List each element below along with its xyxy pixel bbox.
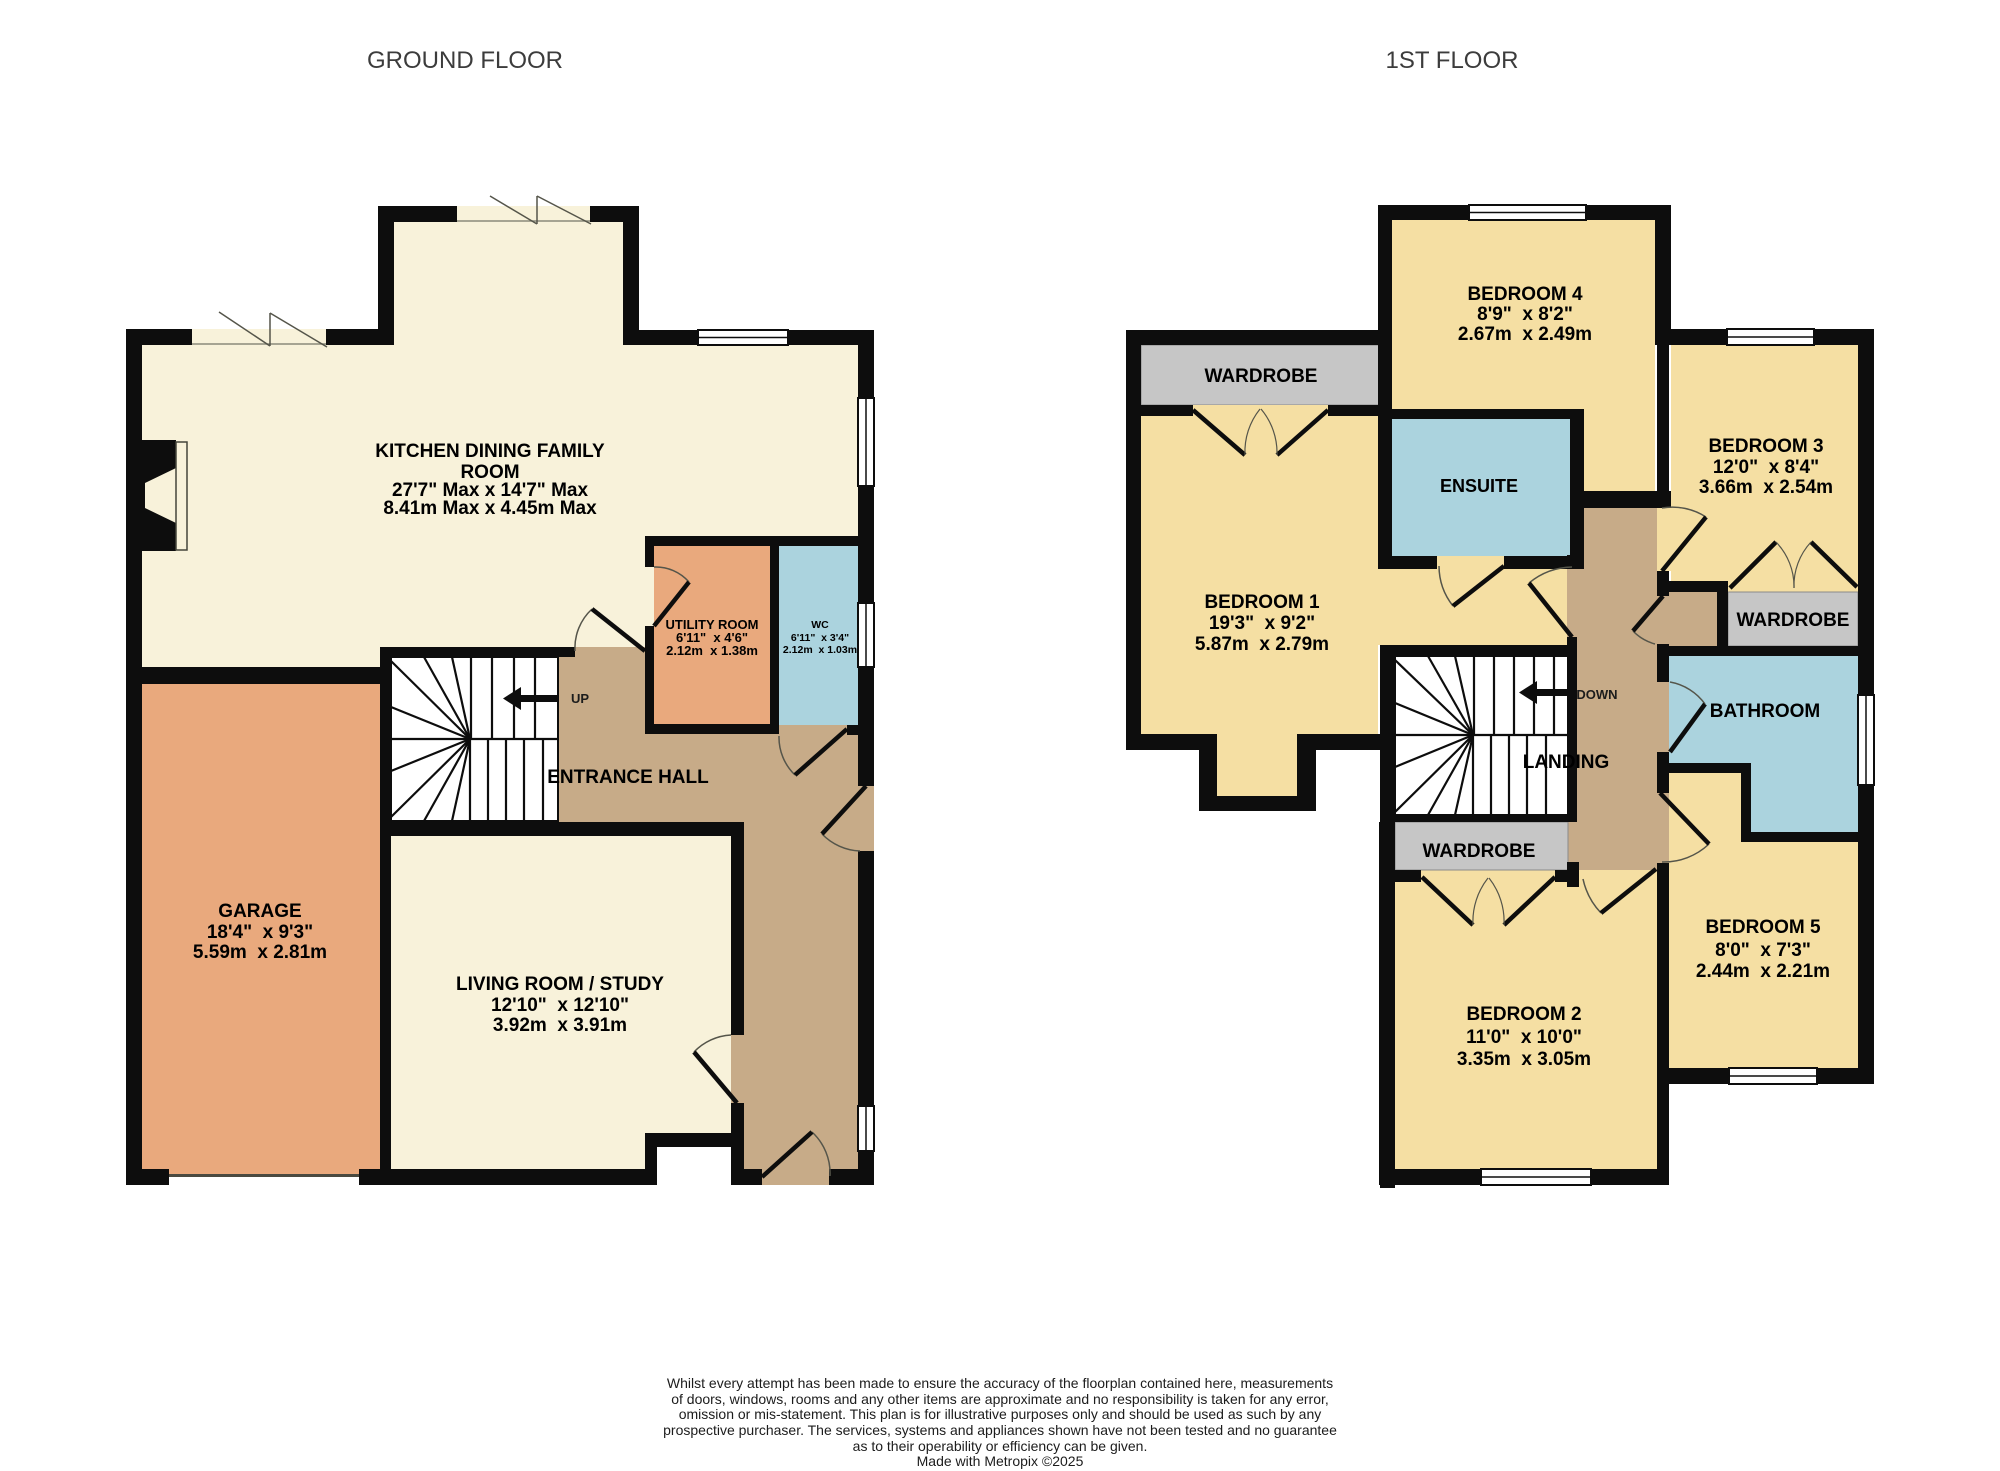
svg-text:BATHROOM: BATHROOM [1710,701,1820,722]
svg-text:2.44m x 2.21m: 2.44m x 2.21m [1696,961,1830,982]
svg-text:of doors, windows, rooms and a: of doors, windows, rooms and any other i… [671,1391,1329,1407]
svg-text:BEDROOM 2: BEDROOM 2 [1466,1004,1581,1025]
svg-text:BEDROOM 5: BEDROOM 5 [1705,917,1821,938]
svg-text:2.12m x 1.38m: 2.12m x 1.38m [666,643,758,658]
svg-text:3.35m x 3.05m: 3.35m x 3.05m [1457,1049,1591,1070]
svg-text:3.66m x 2.54m: 3.66m x 2.54m [1699,477,1833,498]
svg-text:WARDROBE: WARDROBE [1205,366,1318,387]
svg-text:8'0" x 7'3": 8'0" x 7'3" [1715,940,1811,961]
svg-text:KITCHEN DINING FAMILY: KITCHEN DINING FAMILY [375,441,605,462]
svg-text:5.87m x 2.79m: 5.87m x 2.79m [1195,634,1329,655]
svg-text:ENSUITE: ENSUITE [1440,476,1518,496]
svg-text:BEDROOM 1: BEDROOM 1 [1204,592,1320,613]
svg-text:BEDROOM 4: BEDROOM 4 [1467,284,1583,305]
svg-text:WARDROBE: WARDROBE [1423,841,1536,862]
svg-text:2.67m x 2.49m: 2.67m x 2.49m [1458,324,1592,345]
svg-text:LANDING: LANDING [1523,752,1610,773]
svg-text:8.41m Max x 4.45m Max: 8.41m Max x 4.45m Max [383,498,597,519]
svg-text:18'4" x 9'3": 18'4" x 9'3" [207,922,313,943]
svg-text:6'11" x 3'4": 6'11" x 3'4" [791,632,849,644]
svg-text:GARAGE: GARAGE [218,901,301,922]
svg-text:omission or mis-statement. Thi: omission or mis-statement. This plan is … [679,1406,1322,1422]
svg-text:1ST FLOOR: 1ST FLOOR [1386,47,1519,74]
svg-text:2.12m x 1.03m: 2.12m x 1.03m [783,644,857,656]
svg-text:3.92m x 3.91m: 3.92m x 3.91m [493,1015,627,1036]
svg-text:12'0" x 8'4": 12'0" x 8'4" [1713,457,1819,478]
svg-text:8'9" x 8'2": 8'9" x 8'2" [1477,304,1573,325]
svg-text:GROUND FLOOR: GROUND FLOOR [367,47,563,74]
svg-text:Made with Metropix ©2025: Made with Metropix ©2025 [917,1453,1084,1469]
svg-text:11'0" x 10'0": 11'0" x 10'0" [1466,1027,1582,1048]
svg-text:ENTRANCE HALL: ENTRANCE HALL [547,767,709,788]
svg-text:Whilst every attempt has been: Whilst every attempt has been made to en… [667,1375,1333,1391]
svg-text:12'10" x 12'10": 12'10" x 12'10" [491,995,629,1016]
svg-text:19'3" x 9'2": 19'3" x 9'2" [1209,613,1315,634]
svg-text:as to their operability or eff: as to their operability or efficiency ca… [853,1438,1148,1454]
svg-text:WC: WC [811,619,829,631]
svg-text:LIVING ROOM / STUDY: LIVING ROOM / STUDY [456,974,664,995]
svg-text:UP: UP [571,691,589,706]
svg-text:5.59m x 2.81m: 5.59m x 2.81m [193,942,327,963]
svg-text:WARDROBE: WARDROBE [1737,610,1850,631]
svg-text:prospective purchaser. The ser: prospective purchaser. The services, sys… [663,1422,1337,1438]
svg-text:BEDROOM 3: BEDROOM 3 [1708,436,1823,457]
svg-text:DOWN: DOWN [1576,687,1617,702]
